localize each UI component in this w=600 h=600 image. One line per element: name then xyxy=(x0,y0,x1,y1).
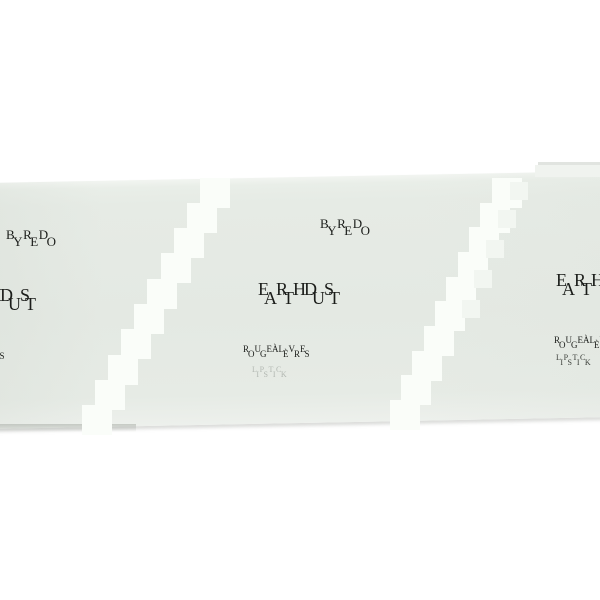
glare-step xyxy=(200,178,230,208)
product-type-fr-text-right: ROUGE À LÈVRES xyxy=(554,339,600,348)
glare-step xyxy=(486,240,504,258)
product-name-text-center: EARTH DUST xyxy=(258,285,339,303)
product-type-en-text-center: LIPSTICK xyxy=(252,369,287,377)
glare-step xyxy=(474,270,492,288)
product-type-en-text-right: LIPSTICK xyxy=(556,357,591,365)
box-top-edge-highlight xyxy=(535,165,600,177)
brand-text-left: BYREDO xyxy=(6,232,56,245)
product-photo: BYREDO EARTH DUST ROUGE À LÈVRES LIPSTIC… xyxy=(0,0,600,600)
glare-step xyxy=(462,300,480,318)
product-name-text-right: EARTH DUST xyxy=(556,276,600,294)
brand-text-center: BYREDO xyxy=(320,221,370,234)
product-name-text-left: EARTH DUST xyxy=(0,291,35,309)
product-type-fr-text-center: ROUGE À LÈVRES xyxy=(243,348,310,357)
glare-step xyxy=(498,210,516,228)
box-shadow xyxy=(0,424,136,432)
glare-step xyxy=(147,279,177,309)
product-type-fr-text-left: ROUGE À LÈVRES xyxy=(0,350,5,359)
glare-step xyxy=(108,355,138,385)
glare-step xyxy=(510,182,528,200)
